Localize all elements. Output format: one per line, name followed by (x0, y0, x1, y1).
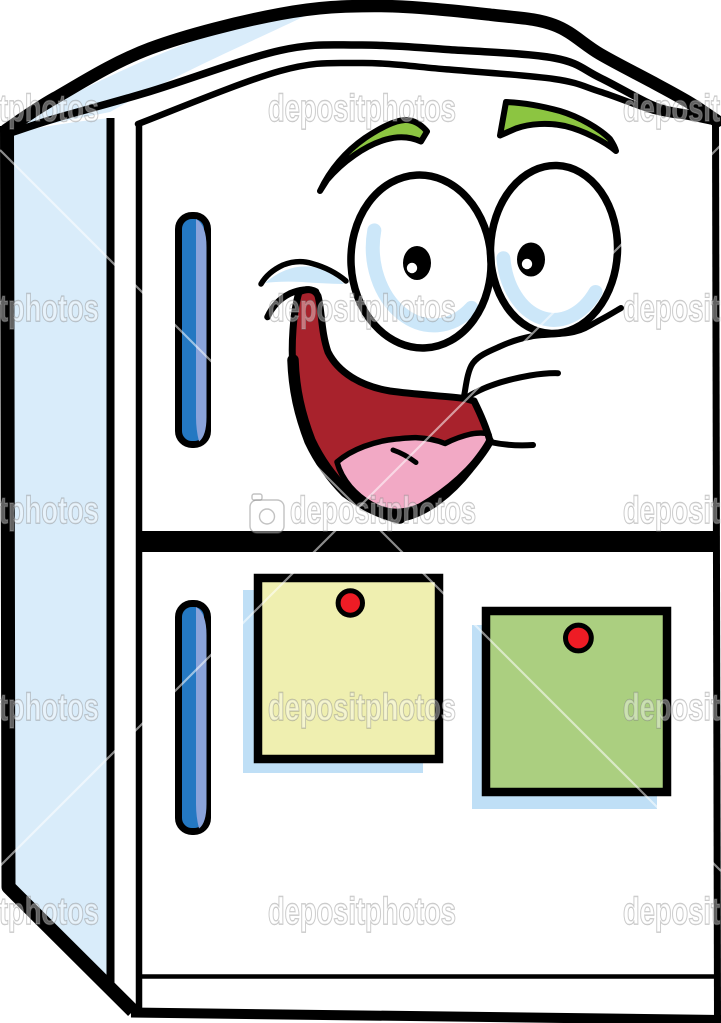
svg-text:depositphotos: depositphotos (623, 88, 721, 130)
svg-text:depositphotos: depositphotos (623, 687, 721, 729)
svg-text:depositphotos: depositphotos (268, 687, 456, 729)
svg-text:depositphotos: depositphotos (268, 288, 456, 330)
svg-text:depositphotos: depositphotos (623, 891, 721, 933)
svg-text:depositphotos: depositphotos (268, 891, 456, 933)
svg-text:depositphotos: depositphotos (623, 288, 721, 330)
svg-text:depositphotos: depositphotos (0, 687, 99, 729)
svg-text:depositphotos: depositphotos (268, 88, 456, 130)
svg-text:depositphotos: depositphotos (0, 288, 99, 330)
svg-text:depositphotos: depositphotos (290, 490, 476, 532)
svg-text:depositphotos: depositphotos (0, 88, 99, 130)
svg-text:depositphotos: depositphotos (623, 490, 721, 532)
svg-text:depositphotos: depositphotos (0, 891, 99, 933)
svg-text:depositphotos: depositphotos (0, 490, 99, 532)
